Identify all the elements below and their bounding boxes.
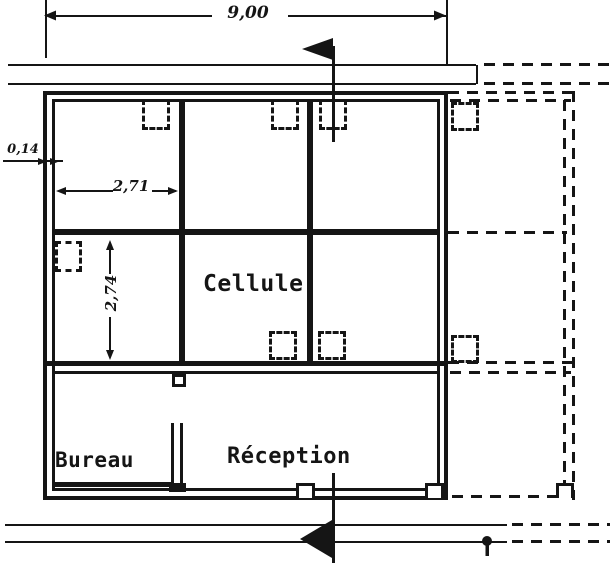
cell-depth-arrow-down-icon: [105, 350, 115, 360]
wall-thickness-tick-1-icon: [38, 157, 47, 166]
upper-boundary-end-tick: [476, 65, 478, 84]
floor-plan-sheet: 9,00 2,71 2,74 0,14: [0, 0, 610, 584]
column-footprint-5: [269, 331, 297, 360]
lower-boundary-line-2: [5, 541, 507, 543]
reception-label: Réception: [227, 444, 351, 469]
future-wall-top-inner-dashed: [450, 99, 571, 102]
dim-arrow-right-icon: [434, 10, 446, 21]
column-footprint-future-1: [451, 102, 479, 131]
upper-boundary-line-2: [8, 83, 476, 85]
overall-width-dimension: 9,00: [212, 3, 284, 23]
boundary-marker-icon: [478, 531, 498, 557]
partition-wall-right-face: [180, 423, 183, 485]
section-arrow-bottom-icon: [300, 517, 333, 561]
facade-post-2: [425, 483, 444, 498]
cell-width-dim-line-left: [59, 190, 113, 192]
strip-top-wall-inner: [52, 371, 440, 374]
facade-post-3-future: [556, 483, 574, 498]
upper-boundary-line-2-dashed: [484, 82, 610, 85]
dim-line-left-segment: [48, 15, 212, 17]
door-pivot-detail: [172, 374, 186, 387]
dim-extension-line-left: [45, 0, 47, 58]
dim-extension-line-right: [446, 0, 448, 64]
lower-boundary-line-2-dashed: [512, 540, 610, 543]
column-footprint-4: [55, 241, 82, 272]
future-wall-mid-dashed: [448, 231, 567, 234]
lower-boundary-line-1-dashed: [512, 523, 610, 526]
bureau-floor-line: [53, 482, 172, 487]
future-wall-low-outer-dashed: [448, 361, 573, 364]
future-wall-right-inner-dashed: [563, 100, 566, 496]
cell-width-arrow-right-icon: [168, 186, 178, 196]
cell-width-dimension: 2,71: [108, 177, 154, 195]
upper-boundary-line-1-dashed: [484, 63, 610, 66]
cell-width-arrow-left-icon: [56, 186, 66, 196]
strip-top-wall-outer: [43, 361, 448, 366]
partition-wall-base: [169, 483, 186, 492]
cell-depth-dimension: 2,74: [102, 267, 120, 319]
bureau-label: Bureau: [55, 448, 134, 472]
column-footprint-6: [318, 331, 346, 360]
future-wall-low-inner-dashed: [450, 371, 571, 374]
column-footprint-1: [142, 99, 170, 130]
upper-boundary-line-1: [8, 64, 476, 66]
cell-depth-arrow-up-icon: [105, 240, 115, 250]
cell-wall-horizontal-mid: [52, 229, 440, 235]
cellule-label: Cellule: [203, 271, 303, 297]
column-footprint-future-2: [451, 335, 479, 363]
wall-thickness-tick-2-icon: [50, 157, 59, 166]
future-wall-top-outer-dashed: [448, 91, 573, 94]
section-arrow-top-icon: [302, 36, 334, 62]
facade-post-1: [296, 483, 315, 498]
dim-line-right-segment: [288, 15, 446, 17]
column-footprint-2: [271, 99, 299, 130]
partition-wall-left-face: [171, 423, 174, 485]
future-wall-right-outer-dashed: [572, 91, 575, 500]
lower-boundary-line-1: [5, 524, 507, 526]
wall-thickness-dimension: 0,14: [4, 142, 42, 157]
dim-arrow-left-icon: [44, 10, 56, 21]
